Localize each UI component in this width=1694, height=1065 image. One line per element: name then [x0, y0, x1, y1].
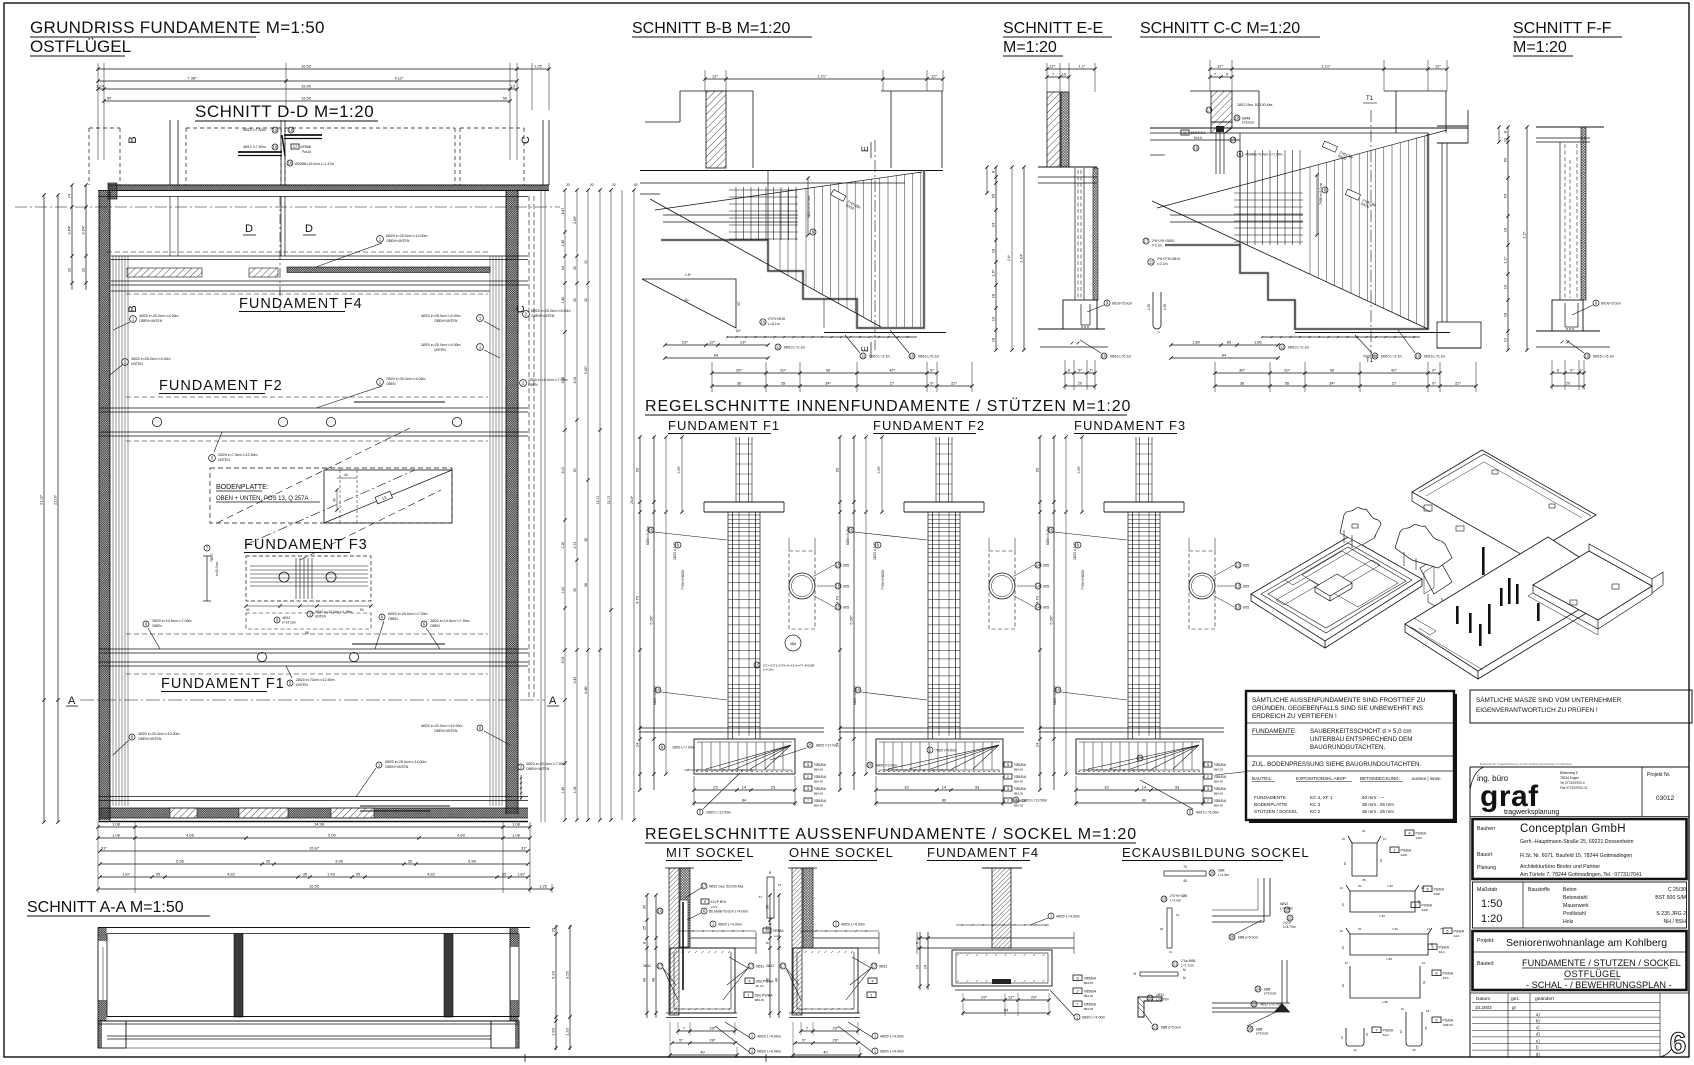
svg-text:24: 24 — [1035, 742, 1040, 747]
svg-text:7Ø20 l=4.00m: 7Ø20 l=4.00m — [935, 749, 957, 753]
svg-text:17: 17 — [293, 144, 298, 149]
svg-text:15: 15 — [1062, 72, 1067, 77]
svg-text:21.07: 21.07 — [53, 494, 58, 505]
svg-text:SB4.05: SB4.05 — [1084, 981, 1094, 985]
svg-text:80: 80 — [942, 798, 947, 803]
svg-text:OBEN: OBEN — [386, 382, 396, 386]
svg-text:PS/BA: PS/BA — [1454, 929, 1465, 933]
svg-text:4xLb: 4xLb — [1443, 976, 1450, 980]
svg-text:UNTEN: UNTEN — [218, 458, 230, 462]
svg-text:e=cb: e=cb — [711, 905, 718, 909]
svg-text:20: 20 — [1210, 870, 1215, 875]
svg-text:54: 54 — [1503, 193, 1508, 198]
svg-text:50: 50 — [635, 467, 640, 472]
svg-text:22: 22 — [1252, 1001, 1257, 1006]
svg-text:35: 35 — [573, 588, 577, 592]
svg-text:2Ø12: 2Ø12 — [1156, 993, 1164, 997]
svg-text:29*: 29* — [709, 1038, 715, 1043]
svg-text:15.87: 15.87 — [309, 846, 320, 851]
svg-text:10: 10 — [761, 319, 766, 324]
svg-text:Bearbeiter der Tragwerksplanun: Bearbeiter der Tragwerksplanung und der … — [1480, 762, 1572, 766]
svg-text:3.95: 3.95 — [335, 859, 344, 864]
svg-text:a): a) — [1536, 1012, 1540, 1017]
svg-text:bP888: bP888 — [301, 145, 311, 149]
svg-text:OBEN: OBEN — [388, 617, 398, 621]
svg-text:15.50: 15.50 — [301, 96, 312, 101]
svg-text:18: 18 — [991, 337, 996, 342]
svg-text:1.80: 1.80 — [1192, 340, 1201, 345]
svg-text:1.5*: 1.5* — [991, 269, 996, 277]
svg-text:64: 64 — [561, 266, 565, 270]
svg-text:UNTEN: UNTEN — [296, 683, 308, 687]
svg-text:35: 35 — [1424, 1026, 1428, 1030]
svg-text:40: 40 — [642, 977, 647, 982]
svg-text:33: 33 — [1175, 785, 1180, 790]
svg-text:78234 Engen: 78234 Engen — [1560, 776, 1579, 780]
svg-text:1.87: 1.87 — [517, 872, 526, 877]
svg-text:50: 50 — [991, 193, 996, 198]
svg-text:SB4.05: SB4.05 — [1014, 768, 1024, 772]
svg-text:15.90: 15.90 — [301, 84, 312, 89]
svg-text:7Ø5/BA: 7Ø5/BA — [1214, 763, 1227, 767]
svg-text:2'1a=Ø68: 2'1a=Ø68 — [1181, 959, 1195, 963]
svg-text:4Ø15 l=7.50m: 4Ø15 l=7.50m — [243, 128, 266, 132]
svg-text:35 mm : 25 mm: 35 mm : 25 mm — [1362, 809, 1394, 814]
svg-text:FUNDAMENT F1: FUNDAMENT F1 — [668, 418, 780, 433]
svg-text:81: 81 — [1362, 829, 1366, 833]
svg-text:5Ø10 L=2.1m: 5Ø10 L=2.1m — [1381, 355, 1402, 359]
svg-text:50: 50 — [1035, 467, 1040, 472]
svg-text:OBEN+UNTEN: OBEN+UNTEN — [434, 729, 458, 733]
svg-text:15: 15 — [755, 662, 760, 667]
svg-text:32: 32 — [81, 267, 86, 272]
svg-text:5.96: 5.96 — [468, 859, 477, 864]
svg-text:81: 81 — [1358, 927, 1362, 931]
svg-text:7*4%+4*6Ø25: 7*4%+4*6Ø25 — [681, 569, 685, 590]
svg-text:1.08: 1.08 — [573, 787, 577, 794]
svg-text:18: 18 — [1160, 927, 1164, 931]
svg-text:Ø25: Ø25 — [1243, 606, 1249, 610]
svg-text:PS/BA: PS/BA — [1434, 887, 1445, 891]
svg-text:SÄMTLICHE AUSSENFUNDAMENTE SIN: SÄMTLICHE AUSSENFUNDAMENTE SIND FROSTTIE… — [1252, 696, 1426, 704]
svg-text:d): d) — [1536, 1032, 1540, 1037]
svg-text:D: D — [245, 223, 253, 235]
svg-text:Tel 07733/9702-0: Tel 07733/9702-0 — [1560, 781, 1585, 785]
svg-text:SÄMTLICHE MASZE SIND VOM UNTER: SÄMTLICHE MASZE SIND VOM UNTERNEHMER — [1476, 696, 1622, 704]
svg-text:40: 40 — [823, 1050, 828, 1055]
svg-text:Fax 07733/9702-21: Fax 07733/9702-21 — [1560, 786, 1588, 790]
svg-text:17: 17 — [781, 963, 786, 968]
svg-text:2Ø12 Ges. 52/100 Abs: 2Ø12 Ges. 52/100 Abs — [1237, 103, 1273, 107]
svg-text:29*: 29* — [981, 995, 987, 1000]
svg-text:L=0.70m: L=0.70m — [1156, 998, 1169, 1002]
svg-text:4Ø20 e=25.0cm l=4.00m: 4Ø20 e=25.0cm l=4.00m — [139, 314, 179, 318]
svg-text:64: 64 — [714, 353, 719, 358]
svg-text:8Ø25 l=17.0m: 8Ø25 l=17.0m — [816, 744, 837, 748]
svg-text:31*: 31* — [521, 846, 527, 851]
svg-text:11: 11 — [1280, 344, 1285, 349]
svg-text:6Ø8 e=5.0cm: 6Ø8 e=5.0cm — [1161, 1026, 1181, 1030]
svg-text:35: 35 — [303, 872, 308, 877]
svg-text:Bü.Matte=5.0cm L=4.00m: Bü.Matte=5.0cm L=4.00m — [709, 910, 748, 914]
svg-text:4.68: 4.68 — [186, 833, 195, 838]
svg-text:14: 14 — [1142, 785, 1147, 790]
svg-text:l=2.1m: l=2.1m — [1157, 262, 1168, 266]
svg-text:1.80: 1.80 — [1254, 340, 1263, 345]
svg-text:36: 36 — [826, 368, 831, 373]
svg-text:L=4.70m: L=4.70m — [1280, 907, 1293, 911]
svg-text:8×4.6: 8×4.6 — [1194, 136, 1202, 140]
svg-text:FUNDAMENT F4: FUNDAMENT F4 — [927, 845, 1039, 860]
svg-text:E: E — [860, 346, 870, 352]
svg-text:10: 10 — [1383, 837, 1387, 841]
svg-text:OBEN: OBEN — [430, 624, 440, 628]
svg-text:6Ø8e=5.0cm: 6Ø8e=5.0cm — [1046, 526, 1050, 545]
svg-text:33: 33 — [1104, 785, 1109, 790]
svg-text:B: B — [127, 305, 139, 312]
svg-text:3Ø20 e=14.5cm l=7.50m: 3Ø20 e=14.5cm l=7.50m — [430, 619, 470, 623]
svg-text:1.08: 1.08 — [512, 822, 521, 827]
svg-text:OBEN + UNTEN, POS 13, Q 257: OBEN + UNTEN, POS 13, Q 257A — [216, 496, 309, 502]
svg-text:24: 24 — [1138, 755, 1143, 760]
svg-text:Birkenweg 5: Birkenweg 5 — [1560, 771, 1578, 775]
svg-text:Holz: Holz — [1563, 919, 1574, 925]
svg-text:1.24: 1.24 — [96, 84, 105, 89]
svg-text:L=4.70m: L=4.70m — [1283, 925, 1296, 929]
svg-text:OBEN+UNTEN: OBEN+UNTEN — [531, 314, 555, 318]
svg-text:1*: 1* — [1089, 368, 1093, 373]
svg-text:SB4.05: SB4.05 — [1214, 804, 1224, 808]
svg-text:1.49: 1.49 — [1379, 914, 1385, 918]
svg-text:1.21*: 1.21* — [817, 74, 827, 79]
svg-text:SCHNITT E-E: SCHNITT E-E — [1003, 20, 1103, 37]
svg-text:21.07: 21.07 — [607, 496, 611, 505]
svg-text:60: 60 — [1341, 984, 1345, 988]
svg-text:B: B — [769, 871, 771, 875]
svg-text:OBEN+UNTEN: OBEN+UNTEN — [526, 767, 550, 771]
svg-text:3Ø12: 3Ø12 — [643, 964, 651, 968]
svg-text:9Ø20 L=4.00m: 9Ø20 L=4.00m — [880, 1050, 904, 1054]
svg-text:4Ø20 e=20.0cm l=7.50m: 4Ø20 e=20.0cm l=7.50m — [526, 762, 566, 766]
svg-text:1.08: 1.08 — [112, 833, 121, 838]
svg-text:1.08: 1.08 — [112, 822, 121, 827]
svg-text:Projekt:: Projekt: — [1477, 938, 1495, 944]
svg-text:5.43: 5.43 — [573, 677, 577, 684]
svg-text:aussen | innen: aussen | innen — [1412, 776, 1441, 781]
svg-text:Projekt Nr.: Projekt Nr. — [1647, 772, 1670, 778]
svg-text:Pos15: Pos15 — [302, 150, 311, 154]
svg-text:FUNDAMENTE: FUNDAMENTE — [1254, 795, 1286, 800]
svg-text:5.30*: 5.30* — [649, 615, 654, 625]
svg-text:50: 50 — [590, 183, 594, 187]
svg-text:e): e) — [1536, 1038, 1540, 1043]
svg-text:9*: 9* — [930, 381, 934, 386]
svg-text:25: 25 — [1341, 903, 1345, 907]
svg-text:6Ø20 L=4.00m: 6Ø20 L=4.00m — [1082, 1016, 1105, 1020]
svg-text:SB4.05: SB4.05 — [1214, 792, 1224, 796]
svg-text:gez.: gez. — [1511, 997, 1520, 1002]
svg-text:7Ø5/BA: 7Ø5/BA — [1084, 976, 1097, 980]
svg-text:EIGENVERANTWORTLICH ZU PRÜFEN: EIGENVERANTWORTLICH ZU PRÜFEN ! — [1476, 706, 1598, 714]
svg-text:PS/BA: PS/BA — [1443, 971, 1454, 975]
svg-text:23: 23 — [1162, 896, 1167, 901]
svg-text:OBEN+UNTEN: OBEN+UNTEN — [138, 737, 162, 741]
svg-text:34*: 34* — [1329, 381, 1335, 386]
svg-text:12: 12 — [1503, 337, 1508, 342]
svg-text:42*: 42* — [889, 368, 895, 373]
svg-text:80: 80 — [1142, 798, 1147, 803]
svg-text:16: 16 — [288, 160, 293, 165]
svg-text:BAUTEIL:: BAUTEIL: — [1252, 776, 1272, 781]
svg-text:2.73: 2.73 — [573, 542, 577, 549]
svg-text:20: 20 — [1566, 381, 1571, 386]
svg-text:30: 30 — [566, 183, 570, 187]
svg-text:1.46: 1.46 — [561, 297, 565, 304]
svg-text:40: 40 — [774, 977, 779, 982]
svg-text:L=1.11m: L=1.11m — [1181, 964, 1194, 968]
svg-text:gr: gr — [1512, 1005, 1517, 1010]
svg-text:27: 27 — [1392, 381, 1397, 386]
svg-text:SB4.05: SB4.05 — [814, 792, 824, 796]
svg-text:18: 18 — [1426, 1009, 1430, 1013]
svg-text:12*: 12* — [1435, 64, 1441, 69]
svg-text:9*: 9* — [1078, 368, 1082, 373]
svg-text:92: 92 — [1422, 980, 1426, 984]
svg-text:UNTEN: UNTEN — [315, 615, 327, 619]
svg-text:9.11*: 9.11* — [394, 76, 403, 81]
svg-text:12: 12 — [511, 84, 516, 89]
svg-text:KC 3: KC 3 — [1310, 802, 1321, 807]
svg-text:FUNDAMENTE / STUTZEN / SOCKEL: FUNDAMENTE / STUTZEN / SOCKEL — [1522, 958, 1681, 968]
svg-text:3.64*: 3.64* — [81, 225, 86, 235]
svg-text:FUNDAMENT F2: FUNDAMENT F2 — [159, 378, 283, 394]
svg-text:7Ø5/BA: 7Ø5/BA — [1084, 989, 1097, 993]
svg-text:35: 35 — [356, 872, 361, 877]
svg-text:17: 17 — [658, 963, 663, 968]
svg-text:1.60: 1.60 — [561, 587, 565, 594]
svg-text:20*: 20* — [780, 368, 786, 373]
svg-text:1.89: 1.89 — [1382, 1000, 1388, 1004]
svg-text:1.90: 1.90 — [1163, 304, 1167, 310]
svg-text:35 mm : 25 mm: 35 mm : 25 mm — [1362, 802, 1394, 807]
svg-text:14.38: 14.38 — [314, 822, 325, 827]
svg-text:UNTERBAU ENTSPRECHEND DEM: UNTERBAU ENTSPRECHEND DEM — [1310, 736, 1412, 743]
svg-text:57: 57 — [759, 895, 763, 899]
svg-text:SCHNITT A-A M=1:50: SCHNITT A-A M=1:50 — [27, 899, 184, 916]
svg-text:65Ø/BKA: 65Ø/BKA — [1191, 131, 1207, 135]
svg-text:25: 25 — [1365, 1032, 1369, 1036]
svg-text:PS/BA: PS/BA — [1443, 1018, 1454, 1022]
svg-text:STÜTZEN / SOCKEL: STÜTZEN / SOCKEL — [1254, 808, 1298, 814]
svg-text:FUNDAMENT F1: FUNDAMENT F1 — [161, 676, 285, 692]
svg-text:Ø294Br=15.0cm L=1.47m: Ø294Br=15.0cm L=1.47m — [295, 162, 334, 166]
svg-text:6Ø20 e=29.0cm l=14.00m: 6Ø20 e=29.0cm l=14.00m — [386, 234, 428, 238]
svg-text:9*: 9* — [1570, 368, 1574, 373]
svg-text:SB4.05: SB4.05 — [1214, 780, 1224, 784]
svg-text:13: 13 — [1236, 583, 1241, 588]
svg-text:3xLb: 3xLb — [1439, 950, 1446, 954]
svg-text:ZUL. BODENPRESSUNG SIEHE BAUG: ZUL. BODENPRESSUNG SIEHE BAUGRUNDGUTACHT… — [1252, 761, 1421, 768]
svg-text:36: 36 — [737, 381, 742, 386]
svg-text:Bauteil:: Bauteil: — [1477, 961, 1494, 967]
svg-text:40: 40 — [700, 1050, 705, 1055]
svg-text:REGELSCHNITTE AUSSENFUNDAMENTE: REGELSCHNITTE AUSSENFUNDAMENTE / SOCKEL … — [645, 826, 1137, 843]
svg-text:B: B — [127, 136, 139, 143]
svg-text:1.1*: 1.1* — [1503, 256, 1508, 264]
svg-text:6Ø8e=5.0cm: 6Ø8e=5.0cm — [846, 526, 850, 545]
svg-text:10: 10 — [1585, 353, 1590, 358]
svg-text:30: 30 — [584, 260, 588, 264]
svg-text:18: 18 — [1503, 227, 1508, 232]
svg-text:2*2'%+3Ø8: 2*2'%+3Ø8 — [1170, 894, 1187, 898]
svg-text:SB4.05: SB4.05 — [755, 998, 765, 1002]
svg-text:MIT SOCKEL: MIT SOCKEL — [666, 845, 755, 860]
svg-text:2.4*: 2.4* — [1007, 254, 1011, 261]
svg-text:18: 18 — [1235, 115, 1240, 120]
svg-text:24: 24 — [635, 742, 640, 747]
svg-text:2Ø20 L=12.50m: 2Ø20 L=12.50m — [1022, 799, 1047, 803]
svg-text:1.90: 1.90 — [1147, 304, 1151, 310]
svg-text:6Ø12: 6Ø12 — [1280, 902, 1288, 906]
svg-text:50: 50 — [634, 183, 638, 187]
svg-text:PS/BA: PS/BA — [1401, 848, 1412, 852]
svg-text:17: 17 — [1231, 137, 1236, 142]
svg-text:5Ø16 L=5.1m: 5Ø16 L=5.1m — [1424, 355, 1445, 359]
svg-text:Am Türlele 7, 78244 Gottmading: Am Türlele 7, 78244 Gottmadingen, Tel.: … — [1520, 872, 1642, 878]
svg-text:M=1:20: M=1:20 — [1003, 39, 1057, 56]
svg-text:9Ø20 L=4.00m: 9Ø20 L=4.00m — [757, 1050, 781, 1054]
svg-text:84: 84 — [742, 798, 747, 803]
svg-text:Betonstahl: Betonstahl — [1563, 895, 1588, 901]
svg-text:Datum: Datum — [1476, 996, 1490, 1002]
svg-text:3.64*: 3.64* — [67, 225, 72, 235]
svg-text:18: 18 — [991, 293, 996, 298]
svg-text:OSTFLÜGEL: OSTFLÜGEL — [1564, 969, 1621, 979]
svg-text:1:20: 1:20 — [1481, 913, 1502, 925]
svg-text:90°: 90° — [737, 300, 741, 306]
svg-text:1.21*: 1.21* — [1321, 64, 1331, 69]
svg-text:OBEN: OBEN — [152, 624, 162, 628]
svg-text:23*: 23* — [682, 340, 688, 345]
svg-text:GRUNDRISS FUNDAMENTE M=1:50: GRUNDRISS FUNDAMENTE M=1:50 — [30, 18, 325, 37]
svg-text:32: 32 — [67, 267, 72, 272]
svg-text:74: 74 — [67, 193, 72, 198]
svg-text:22*: 22* — [1455, 381, 1461, 386]
svg-text:SB4.05: SB4.05 — [1014, 780, 1024, 784]
svg-text:11: 11 — [1149, 259, 1154, 264]
svg-text:15: 15 — [1340, 1036, 1344, 1040]
svg-text:Ø25: Ø25 — [843, 585, 849, 589]
svg-text:84: 84 — [1004, 1008, 1009, 1013]
svg-text:2Ø25 l=3.65: 2Ø25 l=3.65 — [873, 542, 877, 560]
svg-text:C 25/30: C 25/30 — [1668, 887, 1686, 893]
svg-text:36*: 36* — [1239, 368, 1245, 373]
svg-text:1.25: 1.25 — [539, 884, 548, 889]
svg-text:18: 18 — [991, 248, 996, 253]
svg-text:17: 17 — [872, 963, 877, 968]
svg-text:e=5.0cm: e=5.0cm — [1264, 992, 1277, 996]
svg-text:56: 56 — [1285, 381, 1290, 386]
svg-text:40: 40 — [333, 498, 337, 502]
svg-text:81: 81 — [1358, 884, 1362, 888]
svg-text:35: 35 — [502, 872, 507, 877]
svg-text:1.25: 1.25 — [534, 64, 543, 69]
svg-text:18: 18 — [1503, 312, 1508, 317]
svg-text:Ø10e=5.0cm: Ø10e=5.0cm — [1601, 302, 1621, 306]
svg-text:4Ø20 L=4.00m: 4Ø20 L=4.00m — [1056, 915, 1080, 919]
svg-text:SB4.05: SB4.05 — [1084, 1007, 1094, 1011]
svg-text:10: 10 — [1401, 1007, 1405, 1011]
svg-text:c): c) — [1536, 1025, 1540, 1030]
svg-text:5.30*: 5.30* — [849, 615, 854, 625]
svg-text:22: 22 — [1288, 915, 1293, 920]
svg-text:19: 19 — [1503, 284, 1508, 289]
svg-text:9*: 9* — [930, 368, 934, 373]
svg-text:Ø25: Ø25 — [843, 606, 849, 610]
svg-text:40 mm : —: 40 mm : — — [1362, 795, 1385, 800]
svg-text:5Ø16 L=6.1m: 5Ø16 L=6.1m — [1593, 355, 1614, 359]
svg-text:BAUGRUNDGUTACHTEN.: BAUGRUNDGUTACHTEN. — [1310, 744, 1385, 751]
svg-text:5Ø16 L=5.1m: 5Ø16 L=5.1m — [918, 355, 939, 359]
svg-text:OBEN+UNTEN: OBEN+UNTEN — [139, 319, 163, 323]
svg-text:60: 60 — [573, 468, 577, 472]
svg-text:SB4.05: SB4.05 — [1014, 804, 1024, 808]
svg-text:Ø25: Ø25 — [1043, 564, 1049, 568]
svg-text:1.5*: 1.5* — [685, 273, 692, 277]
svg-text:35: 35 — [266, 859, 271, 864]
svg-text:35: 35 — [408, 859, 413, 864]
svg-text:6Ø10 L=2.1m: 6Ø10 L=2.1m — [1288, 346, 1309, 350]
svg-text:4.82: 4.82 — [227, 872, 236, 877]
svg-text:OBEN+UNTEN: OBEN+UNTEN — [434, 319, 458, 323]
svg-text:25: 25 — [771, 785, 776, 790]
svg-text:1:50: 1:50 — [1481, 898, 1502, 910]
svg-text:1.50: 1.50 — [1387, 884, 1393, 888]
svg-text:ECKAUSBILDUNG SOCKEL: ECKAUSBILDUNG SOCKEL — [1122, 845, 1310, 860]
svg-text:75: 75 — [1183, 865, 1187, 869]
svg-text:2*6+2*5+2Ø10: 2*6+2*5+2Ø10 — [1152, 239, 1175, 243]
svg-text:Architekturbüro Binder und Par: Architekturbüro Binder und Partner — [1520, 864, 1600, 870]
svg-text:17: 17 — [1207, 107, 1212, 112]
svg-text:e=15.0cm: e=15.0cm — [215, 562, 219, 576]
svg-text:1Ø20 L=7.00m: 1Ø20 L=7.00m — [672, 746, 695, 750]
svg-text:g): g) — [1536, 1052, 1540, 1057]
svg-text:4Ø12 l=7.50m: 4Ø12 l=7.50m — [243, 145, 266, 149]
svg-text:10: 10 — [1427, 927, 1431, 931]
svg-text:36: 36 — [642, 904, 647, 909]
svg-text:4Ø20 L=4.00m: 4Ø20 L=4.00m — [841, 923, 865, 927]
svg-text:tragwerksplanung: tragwerksplanung — [1504, 809, 1559, 816]
svg-text:EXPOSITIONSKL ABSP:: EXPOSITIONSKL ABSP: — [1296, 776, 1347, 781]
svg-text:7Ø5/BA: 7Ø5/BA — [1014, 787, 1027, 791]
svg-text:2Ø25 l=3.65: 2Ø25 l=3.65 — [673, 542, 677, 560]
svg-text:4Ø20 e=20.0cm l=10.00m: 4Ø20 e=20.0cm l=10.00m — [421, 724, 463, 728]
svg-text:3xRb: 3xRb — [1434, 892, 1441, 896]
svg-text:7Ø5/BA: 7Ø5/BA — [1214, 799, 1227, 803]
svg-text:UNTEN: UNTEN — [131, 362, 143, 366]
svg-text:13: 13 — [1236, 604, 1241, 609]
svg-text:12*: 12* — [1049, 64, 1055, 69]
svg-text:30: 30 — [612, 183, 616, 187]
svg-text:4Ø12 L=0.70m: 4Ø12 L=0.70m — [1260, 1003, 1282, 1007]
svg-text:9*: 9* — [1432, 381, 1436, 386]
svg-text:SB4.05: SB4.05 — [814, 780, 824, 784]
svg-text:35*: 35* — [736, 368, 742, 373]
svg-text:Baustoffe: Baustoffe — [1528, 887, 1550, 893]
svg-text:FUNDAMENT F2: FUNDAMENT F2 — [873, 418, 985, 433]
svg-text:7Ø5/BA: 7Ø5/BA — [1214, 775, 1227, 779]
svg-text:24: 24 — [915, 964, 920, 969]
